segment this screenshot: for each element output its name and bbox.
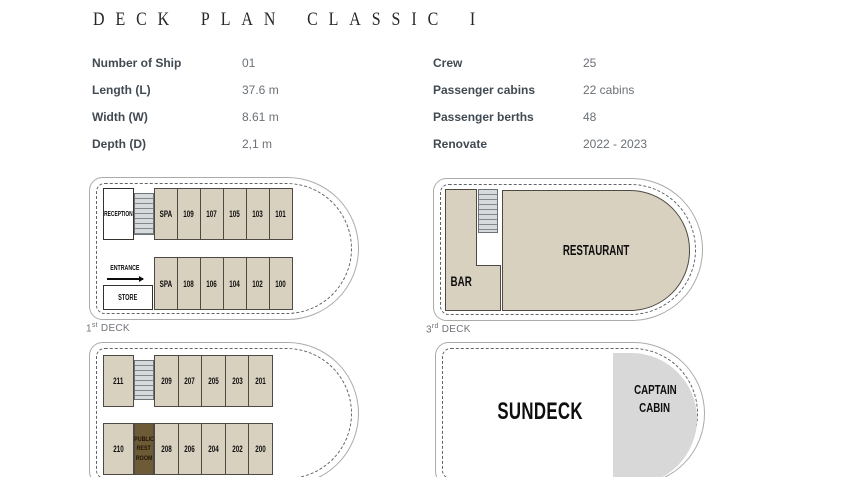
store-room: STORE [103, 285, 153, 310]
spec-label: Number of Ship [92, 56, 242, 70]
cabin-109: 109 [178, 188, 201, 240]
spec-value: 8.61 m [242, 110, 279, 124]
spec-value: 37.6 m [242, 83, 279, 97]
spa-room: SPA [154, 188, 178, 240]
spec-row-crew: Crew 25 [433, 49, 763, 76]
spec-label: Depth (D) [92, 137, 242, 151]
cabin-203: 203 [226, 355, 250, 407]
cabin-206: 206 [179, 423, 203, 475]
bar-label: BAR [450, 273, 471, 289]
cabin-102: 102 [247, 257, 270, 310]
spec-label: Length (L) [92, 83, 242, 97]
entrance: ENTRANCE [102, 257, 148, 280]
spec-label: Crew [433, 56, 583, 70]
spec-row-number-of-ship: Number of Ship 01 [92, 49, 422, 76]
deck2-bottom-cabin-row: 208 206 204 202 200 [154, 423, 273, 475]
deck1-bottom-cabin-row: SPA 108 106 104 102 100 [154, 257, 293, 310]
cabin-205: 205 [202, 355, 226, 407]
stairs-icon [134, 360, 154, 400]
cabin-100: 100 [270, 257, 293, 310]
spec-row-passenger-berths: Passenger berths 48 [433, 103, 763, 130]
spec-row-depth: Depth (D) 2,1 m [92, 130, 422, 157]
reception-room: RECEPTION [103, 188, 134, 240]
page-title: DECK PLAN CLASSIC I [93, 9, 486, 31]
sundeck-label: SUNDECK [465, 398, 615, 426]
cabin-104: 104 [224, 257, 247, 310]
sundeck-plan: CAPTAIN CABIN SUNDECK [435, 342, 715, 477]
deck1-plan: RECEPTION SPA 109 107 105 103 101 ENTRAN… [89, 177, 369, 342]
spec-value: 2,1 m [242, 137, 272, 151]
spec-row-renovate: Renovate 2022 - 2023 [433, 130, 763, 157]
spec-value: 25 [583, 56, 596, 70]
cabin-101: 101 [270, 188, 293, 240]
cabin-207: 207 [179, 355, 203, 407]
cabin-202: 202 [226, 423, 250, 475]
spec-value: 01 [242, 56, 255, 70]
store-label: STORE [118, 293, 137, 302]
entrance-arrow-icon [107, 278, 143, 280]
cabin-106: 106 [201, 257, 224, 310]
cabin-211: 211 [103, 355, 134, 407]
cabin-204: 204 [202, 423, 226, 475]
deck2-top-cabin-row: 209 207 205 203 201 [154, 355, 273, 407]
spec-label: Passenger berths [433, 110, 583, 124]
spec-value: 22 cabins [583, 83, 634, 97]
spec-row-width: Width (W) 8.61 m [92, 103, 422, 130]
deck2-plan: 211 209 207 205 203 201 210 PUBLIC REST … [89, 342, 369, 477]
cabin-200: 200 [249, 423, 273, 475]
cabin-105: 105 [224, 188, 247, 240]
specs-right-column: Crew 25 Passenger cabins 22 cabins Passe… [433, 49, 763, 157]
cabin-210: 210 [103, 423, 134, 475]
stairs-icon [134, 193, 154, 235]
cabin-103: 103 [247, 188, 270, 240]
spec-value: 2022 - 2023 [583, 137, 647, 151]
cabin-208: 208 [154, 423, 179, 475]
specs-left-column: Number of Ship 01 Length (L) 37.6 m Widt… [92, 49, 422, 157]
spec-label: Passenger cabins [433, 83, 583, 97]
deck-plan-page: DECK PLAN CLASSIC I Number of Ship 01 Le… [0, 0, 848, 477]
cabin-107: 107 [201, 188, 224, 240]
spec-label: Width (W) [92, 110, 242, 124]
deck1-top-cabin-row: SPA 109 107 105 103 101 [154, 188, 293, 240]
spec-row-passenger-cabins: Passenger cabins 22 cabins [433, 76, 763, 103]
entrance-label: ENTRANCE [110, 263, 139, 272]
public-rest-room: PUBLIC REST ROOM [134, 423, 154, 475]
spec-row-length: Length (L) 37.6 m [92, 76, 422, 103]
deck3-plan: BAR RESTAURANT 3rdDECK [433, 178, 713, 343]
restaurant-label: RESTAURANT [563, 242, 629, 259]
cabin-108: 108 [178, 257, 201, 310]
restaurant-room: RESTAURANT [502, 190, 690, 311]
cabin-201: 201 [249, 355, 273, 407]
spec-value: 48 [583, 110, 596, 124]
cabin-209: 209 [154, 355, 179, 407]
deck3-label: 3rdDECK [426, 323, 471, 335]
spa-room: SPA [154, 257, 178, 310]
reception-label: RECEPTION [104, 211, 133, 218]
spec-label: Renovate [433, 137, 583, 151]
deck1-label: 1stDECK [86, 322, 130, 334]
stairs-icon [478, 189, 498, 233]
